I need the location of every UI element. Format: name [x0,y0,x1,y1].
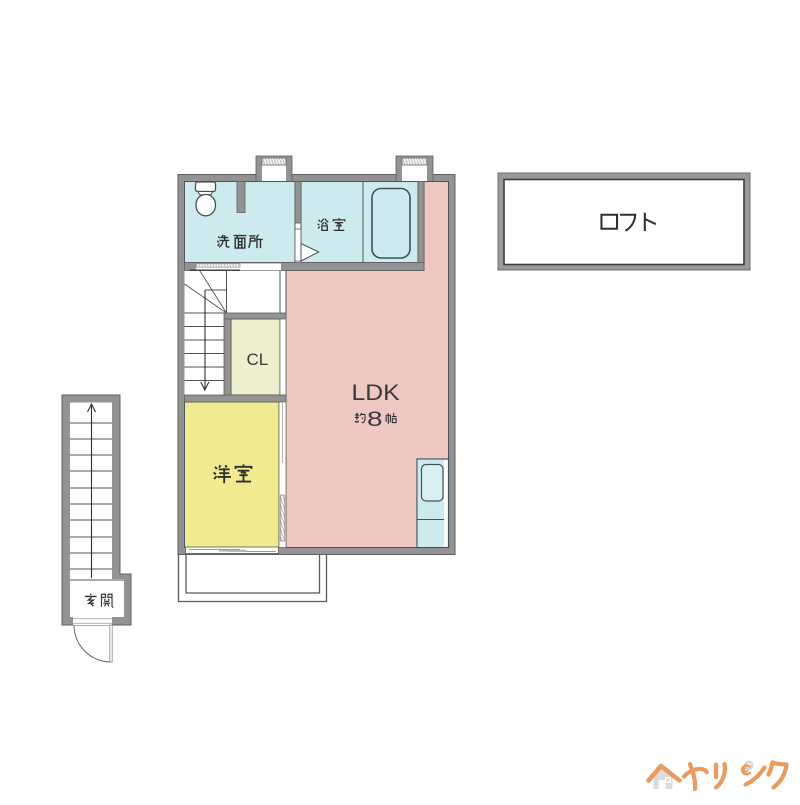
svg-text:8: 8 [367,407,383,431]
svg-text:CL: CL [247,350,269,369]
svg-text:LDK: LDK [352,381,400,406]
